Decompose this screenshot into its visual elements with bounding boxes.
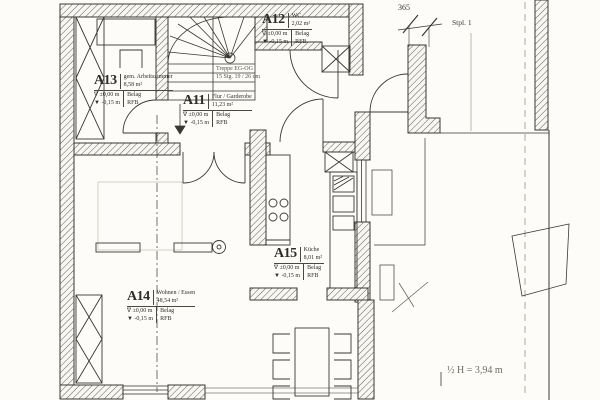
room-code: A13: [94, 74, 121, 89]
desk-a13: [97, 19, 155, 45]
shaft-kitchen: [325, 152, 353, 172]
door-wc: [290, 50, 338, 98]
kitchen-counter-left: [266, 155, 290, 245]
floor-plan-page: A13 gem. Arbeitszimmer 8,58 m² ∇ ±0,00 m…: [0, 0, 600, 400]
room-level-bottom: ▼ -0,15 m: [262, 38, 291, 46]
door-double-right: [214, 152, 245, 183]
dining-chairs-left: [273, 334, 290, 399]
oven: [333, 196, 354, 212]
stair-direction-arrow: [175, 126, 185, 134]
room-level-top: ∇ ±0,00 m: [262, 30, 291, 38]
stair-note-line2: 15 Stg. 19 / 26 cm: [216, 74, 260, 82]
room-finish-top: Belag: [303, 264, 324, 272]
wall-right-upper: [349, 4, 363, 75]
room-name: gem. Arbeitszimmer: [124, 74, 173, 82]
room-finish-bottom: RFB: [303, 272, 324, 280]
room-code: A12: [262, 13, 289, 28]
appliance: [333, 216, 354, 230]
room-level-bottom: ▼ -0,15 m: [127, 315, 156, 323]
plan-drawing: [0, 0, 600, 400]
room-finish-top: Belag: [291, 30, 312, 38]
wall-living-east: [358, 300, 374, 399]
room-label-a15: A15 Küche 8,01 m² ∇ ±0,00 m Belag ▼ -0,1…: [274, 247, 324, 280]
room-name: Wohnen / Essen: [157, 290, 196, 298]
room-finish-bottom: RFB: [212, 119, 233, 127]
room-area: 8,01 m²: [304, 255, 322, 263]
wall-a13-a14: [74, 143, 180, 155]
stair-winders: [168, 17, 255, 58]
terrain-quad: [512, 224, 569, 296]
rug-faint: [98, 182, 182, 250]
room-code: A14: [127, 290, 154, 305]
kitchen-counter-right: [330, 172, 357, 288]
dining-set: [273, 328, 351, 399]
wall-entry-pier: [408, 45, 440, 133]
room-level-bottom: ▼ -0,15 m: [94, 99, 123, 107]
room-name: Küche: [304, 247, 322, 255]
cooktop-burners: [269, 199, 288, 221]
room-label-a14: A14 Wohnen / Essen 48,54 m² ∇ ±0,00 m Be…: [127, 290, 195, 323]
wall-bottom-left: [60, 385, 123, 399]
shaft-wc: [322, 46, 350, 72]
shafts: [322, 46, 353, 172]
dining-table: [295, 328, 329, 396]
room-label-a13: A13 gem. Arbeitszimmer 8,58 m² ∇ ±0,00 m…: [94, 74, 173, 107]
room-label-a12: A12 WC 2,02 m² ∇ ±0,00 m Belag ▼ -0,15 m…: [262, 13, 312, 46]
room-label-a11: A11 Flur / Garderobe 11,23 m² ∇ ±0,00 m …: [183, 94, 252, 127]
door-kitchen: [280, 99, 323, 142]
wall-left: [60, 4, 74, 399]
stair-note: Treppe EG-OG 15 Stg. 19 / 26 cm: [216, 66, 260, 82]
parking-spot-label: Stpl. 1: [452, 18, 472, 27]
room-area: 2,02 m²: [292, 21, 310, 29]
room-name: WC: [292, 13, 310, 21]
room-finish-top: Belag: [156, 307, 177, 315]
room-finish-top: Belag: [212, 111, 233, 119]
room-level-bottom: ▼ -0,15 m: [274, 272, 303, 280]
room-level-top: ∇ ±0,00 m: [94, 91, 123, 99]
room-finish-top: Belag: [123, 91, 144, 99]
room-level-top: ∇ ±0,00 m: [183, 111, 212, 119]
terrain-marks: [392, 282, 428, 312]
door-entry: [370, 74, 408, 112]
room-finish-bottom: RFB: [123, 99, 144, 107]
wardrobe-a14: [76, 295, 102, 383]
room-code: A15: [274, 247, 301, 262]
dimension-365-ticks: [398, 15, 442, 47]
room-finish-bottom: RFB: [291, 38, 312, 46]
room-area: 11,23 m²: [212, 102, 252, 110]
door-double-left: [183, 152, 214, 183]
walls: [60, 0, 548, 399]
room-code: A11: [183, 94, 209, 109]
wall-bottom-mid: [168, 385, 205, 399]
room-level-bottom: ▼ -0,15 m: [183, 119, 212, 127]
room-area: 48,54 m²: [157, 298, 196, 306]
windows: [123, 160, 366, 394]
stair-note-line1: Treppe EG-OG: [216, 66, 260, 74]
dining-chairs-right: [334, 334, 351, 399]
room-name: Flur / Garderobe: [212, 94, 252, 102]
room-area: 8,58 m²: [124, 82, 173, 90]
room-finish-bottom: RFB: [156, 315, 177, 323]
exterior-steps: [372, 138, 425, 300]
sideboard: [96, 241, 226, 254]
window-patio-lines: [205, 388, 358, 393]
room-level-top: ∇ ±0,00 m: [127, 307, 156, 315]
wall-kitchen-west: [250, 130, 266, 245]
wall-top: [60, 4, 363, 17]
height-annotation: ½ H = 3,94 m: [447, 365, 503, 376]
room-level-top: ∇ ±0,00 m: [274, 264, 303, 272]
wall-east-mid: [355, 112, 370, 160]
chair-a13: [120, 50, 142, 68]
wall-carport-east: [535, 0, 548, 130]
dimension-365-label: 365: [398, 3, 410, 12]
round-table: [213, 241, 226, 254]
wall-kitchen-south-right: [327, 288, 368, 300]
wall-kitchen-south-left: [250, 288, 297, 300]
